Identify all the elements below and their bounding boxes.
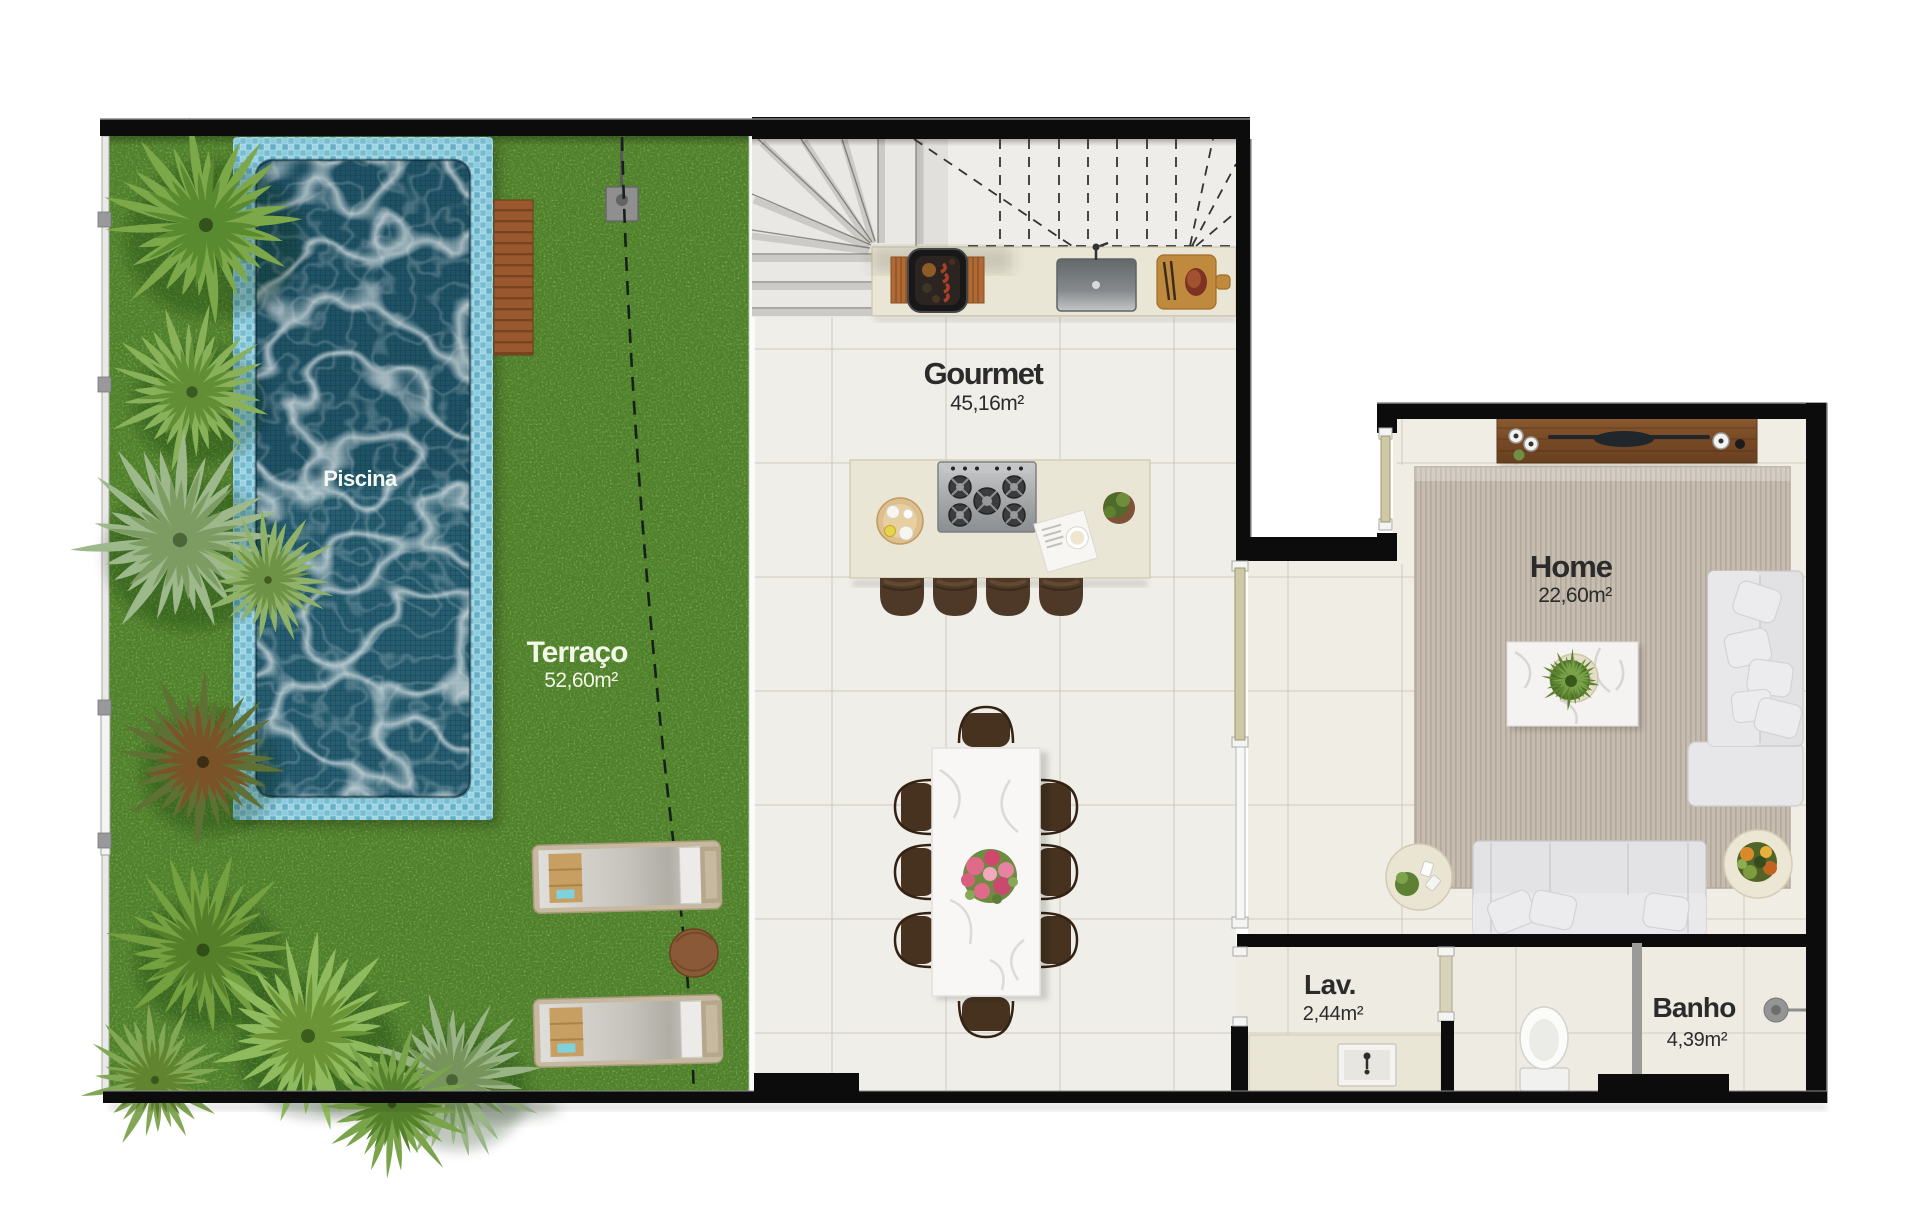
svg-text:Banho: Banho (1652, 992, 1736, 1023)
svg-text:Piscina: Piscina (323, 466, 398, 491)
svg-text:Terraço: Terraço (527, 636, 629, 669)
svg-text:45,16m²: 45,16m² (950, 392, 1024, 415)
svg-text:52,60m²: 52,60m² (544, 669, 618, 692)
svg-text:Home: Home (1530, 549, 1613, 584)
svg-text:Lav.: Lav. (1304, 969, 1356, 1000)
svg-text:4,39m²: 4,39m² (1667, 1029, 1728, 1051)
svg-text:2,44m²: 2,44m² (1303, 1003, 1364, 1025)
svg-text:22,60m²: 22,60m² (1538, 584, 1612, 607)
svg-text:Gourmet: Gourmet (924, 356, 1044, 391)
